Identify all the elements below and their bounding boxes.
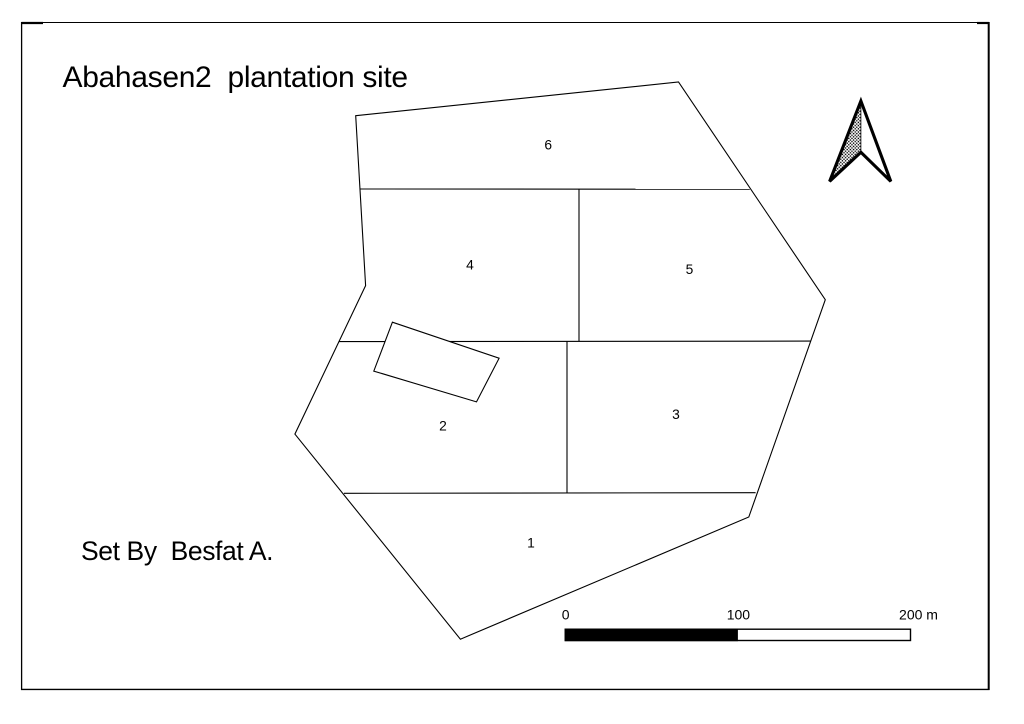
svg-text:5: 5: [686, 262, 694, 277]
svg-text:3: 3: [672, 407, 680, 422]
svg-text:2: 2: [439, 418, 447, 433]
svg-text:Abahasen2 plantation site: Abahasen2 plantation site: [63, 61, 408, 94]
svg-text:200 m: 200 m: [899, 607, 938, 623]
svg-text:4: 4: [466, 258, 474, 273]
svg-text:Set By Besfat A.: Set By Besfat A.: [81, 536, 273, 566]
svg-text:6: 6: [544, 137, 552, 152]
svg-text:100: 100: [727, 607, 751, 623]
svg-text:1: 1: [527, 535, 535, 550]
svg-text:0: 0: [562, 606, 570, 622]
